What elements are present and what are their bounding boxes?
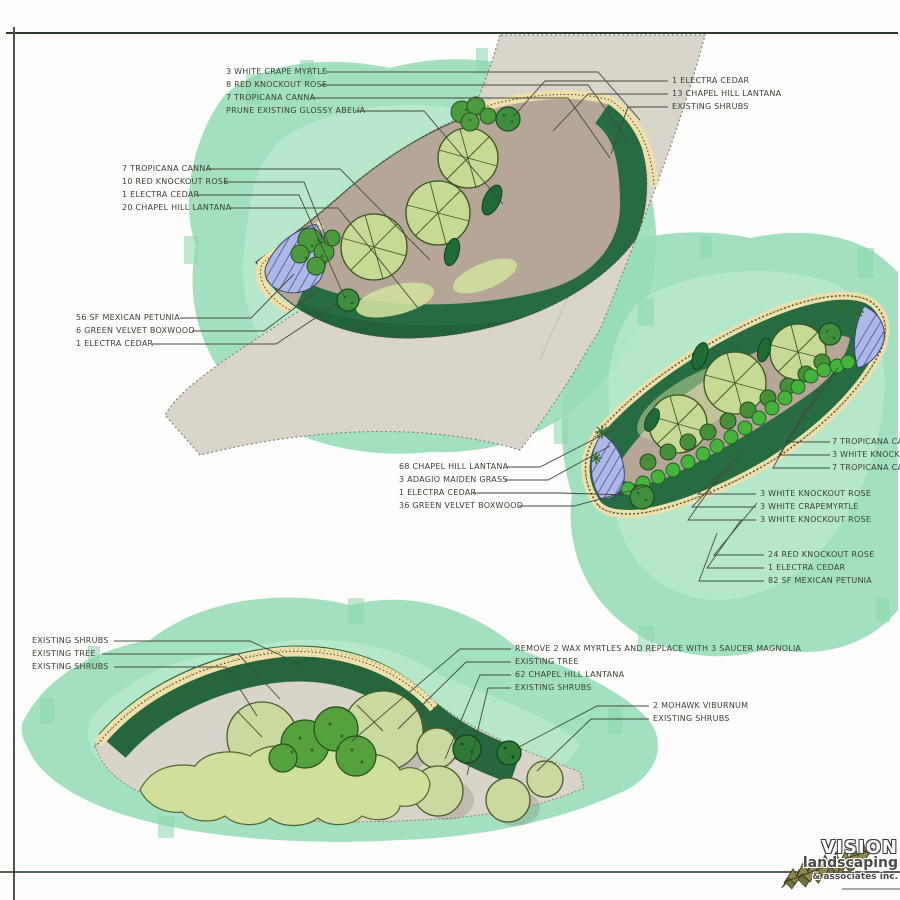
plant-label: 68 CHAPEL HILL LANTANA bbox=[399, 461, 508, 473]
plant-label: 7 TROPICANA CANNA bbox=[226, 92, 315, 104]
plant-label: REMOVE 2 WAX MYRTLES AND REPLACE WITH 3 … bbox=[515, 643, 801, 655]
plant-label: 82 SF MEXICAN PETUNIA bbox=[768, 575, 872, 587]
plant-label: 13 CHAPEL HILL LANTANA bbox=[672, 88, 781, 100]
plant-label: EXISTING SHRUBS bbox=[32, 635, 109, 647]
plant-label: 1 ELECTRA CEDAR bbox=[122, 189, 199, 201]
plant-label: 3 WHITE CRAPEMYRTLE bbox=[760, 501, 859, 513]
vision-logo: VISION landscaping & associates inc. bbox=[780, 831, 900, 895]
plant-label: 2 MOHAWK VIBURNUM bbox=[653, 700, 748, 712]
site-plan-drawing bbox=[0, 0, 900, 900]
plant-label: 7 TROPICANA CANNA bbox=[122, 163, 211, 175]
plant-label: 8 RED KNOCKOUT ROSE bbox=[226, 79, 327, 91]
plant-label: 36 GREEN VELVET BOXWOOD bbox=[399, 500, 523, 512]
plant-label: EXISTING TREE bbox=[515, 656, 579, 668]
plant-label: 62 CHAPEL HILL LANTANA bbox=[515, 669, 624, 681]
plant-label: 7 TROPICANA CANNA bbox=[832, 462, 900, 474]
landscape-plan-page: 3 WHITE CRAPE MYRTLE 8 RED KNOCKOUT ROSE… bbox=[0, 0, 900, 900]
plant-label: 24 RED KNOCKOUT ROSE bbox=[768, 549, 875, 561]
plant-label: EXISTING SHRUBS bbox=[515, 682, 592, 694]
plant-label: 3 ADAGIO MAIDEN GRASS bbox=[399, 474, 508, 486]
plant-label: 10 RED KNOCKOUT ROSE bbox=[122, 176, 229, 188]
plant-label: PRUNE EXISTING GLOSSY ABELIA bbox=[226, 105, 365, 117]
logo-landscaping: landscaping bbox=[803, 855, 898, 871]
plant-label: 1 ELECTRA CEDAR bbox=[768, 562, 845, 574]
plant-label: 1 ELECTRA CEDAR bbox=[672, 75, 749, 87]
logo-associates: & associates inc. bbox=[812, 872, 898, 882]
plant-label: 1 ELECTRA CEDAR bbox=[76, 338, 153, 350]
plant-label: 1 ELECTRA CEDAR bbox=[399, 487, 476, 499]
plant-label: EXISTING TREE bbox=[32, 648, 96, 660]
plant-label: 56 SF MEXICAN PETUNIA bbox=[76, 312, 180, 324]
plant-label: 7 TROPICANA CANNA bbox=[832, 436, 900, 448]
plant-label: 3 WHITE CRAPE MYRTLE bbox=[226, 66, 327, 78]
plant-label: 6 GREEN VELVET BOXWOOD bbox=[76, 325, 195, 337]
plant-label: EXISTING SHRUBS bbox=[32, 661, 109, 673]
plant-label: 20 CHAPEL HILL LANTANA bbox=[122, 202, 231, 214]
plant-label: 3 WHITE KNOCKOUT bbox=[832, 449, 900, 461]
plant-label: 3 WHITE KNOCKOUT ROSE bbox=[760, 488, 871, 500]
plant-label: EXISTING SHRUBS bbox=[672, 101, 749, 113]
logo-underline bbox=[842, 888, 900, 890]
plant-label: 3 WHITE KNOCKOUT ROSE bbox=[760, 514, 871, 526]
plant-label: EXISTING SHRUBS bbox=[653, 713, 730, 725]
